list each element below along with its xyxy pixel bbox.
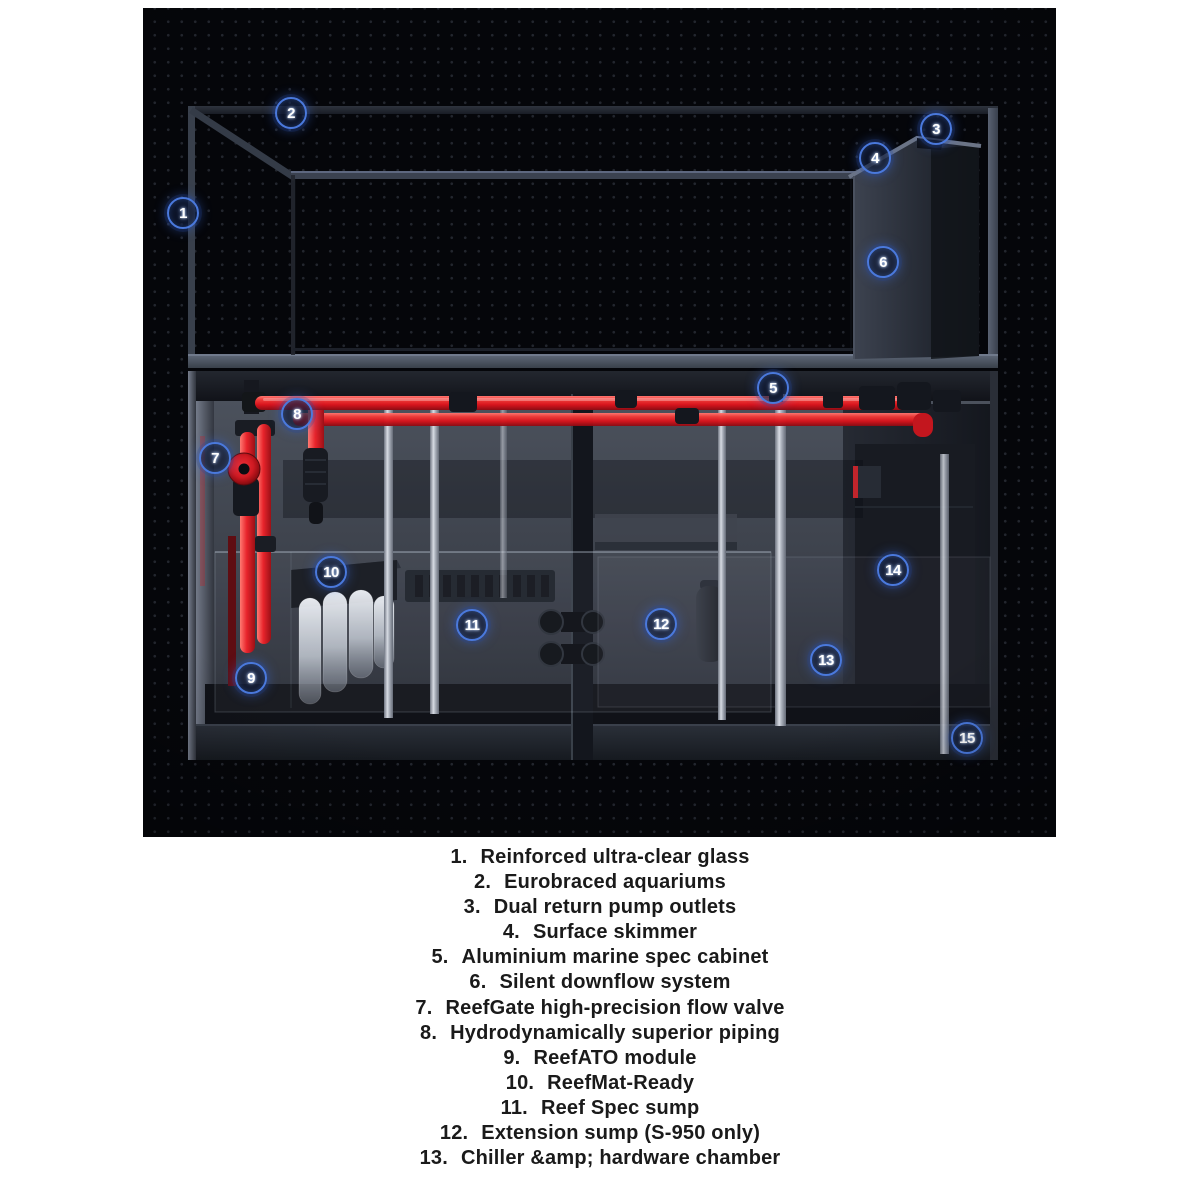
feature-item-2: 2.Eurobraced aquariums	[0, 870, 1200, 895]
callout-badge-3: 3	[920, 113, 952, 145]
downflow-shade	[931, 145, 979, 359]
feature-number: 11.	[501, 1096, 528, 1121]
tank-top-frame	[188, 106, 998, 114]
feature-number: 12.	[440, 1121, 468, 1146]
controller-red-stripe	[853, 466, 858, 498]
callout-badge-11: 11	[456, 609, 488, 641]
callout-badge-10: 10	[315, 556, 347, 588]
feature-number: 1.	[450, 845, 467, 870]
check-valve	[303, 448, 328, 502]
feature-label: Silent downflow system	[499, 971, 730, 993]
feature-label: Surface skimmer	[533, 921, 697, 943]
pipe-highlight	[263, 398, 919, 401]
callout-badge-9: 9	[235, 662, 267, 694]
feature-item-9: 9.ReefATO module	[0, 1046, 1200, 1071]
feature-item-7: 7.ReefGate high-precision flow valve	[0, 996, 1200, 1021]
feature-label: Aluminium marine spec cabinet	[462, 946, 769, 968]
feature-label: ReefGate high-precision flow valve	[445, 997, 784, 1019]
aquarium-figure: 123456789101112131415	[143, 8, 1056, 837]
feature-number: 10.	[506, 1071, 534, 1096]
feature-item-5: 5.Aluminium marine spec cabinet	[0, 945, 1200, 970]
cabinet-right-frame	[990, 371, 998, 760]
feature-item-12: 12.Extension sump (S-950 only)	[0, 1121, 1200, 1146]
feature-number: 13.	[420, 1146, 448, 1171]
down-pipe-b	[257, 424, 271, 644]
feature-label: Reinforced ultra-clear glass	[481, 846, 750, 868]
base-edge	[190, 724, 998, 726]
feature-number: 9.	[503, 1046, 520, 1071]
tank-inner-bottom-edge	[293, 348, 853, 351]
feature-label: Extension sump (S-950 only)	[481, 1122, 760, 1144]
callout-badge-5: 5	[757, 372, 789, 404]
feature-item-8: 8.Hydrodynamically superior piping	[0, 1021, 1200, 1046]
feature-label: Hydrodynamically superior piping	[450, 1022, 780, 1044]
post	[500, 398, 507, 598]
feature-number: 5.	[431, 945, 448, 970]
tank-left-frame	[188, 106, 195, 362]
feature-label: Reef Spec sump	[541, 1097, 699, 1119]
tank-right-frame	[988, 108, 998, 366]
pipe-end-bend	[913, 413, 933, 437]
post	[940, 454, 949, 754]
feature-number: 3.	[464, 895, 481, 920]
feature-item-13: 13.Chiller &amp; hardware chamber	[0, 1146, 1200, 1171]
valve-hub	[239, 464, 250, 475]
callout-badge-4: 4	[859, 142, 891, 174]
callout-badge-2: 2	[275, 97, 307, 129]
callout-badge-6: 6	[867, 246, 899, 278]
feature-label: Dual return pump outlets	[494, 896, 737, 918]
callout-badge-15: 15	[951, 722, 983, 754]
manifold-pipe-2	[293, 413, 929, 426]
callout-badge-8: 8	[281, 398, 313, 430]
feature-number: 2.	[474, 870, 491, 895]
callout-badge-13: 13	[810, 644, 842, 676]
feature-number: 8.	[420, 1021, 437, 1046]
feature-label: Chiller &amp; hardware chamber	[461, 1147, 780, 1169]
post	[718, 406, 726, 720]
feature-number: 6.	[469, 970, 486, 995]
aquarium-illustration	[143, 8, 1056, 837]
valve-tip	[309, 502, 323, 524]
feature-item-10: 10.ReefMat-Ready	[0, 1071, 1200, 1096]
feature-list: 1.Reinforced ultra-clear glass2.Eurobrac…	[0, 845, 1200, 1171]
post	[775, 394, 786, 726]
cabinet-left-frame	[188, 371, 196, 760]
feature-label: Eurobraced aquariums	[504, 871, 726, 893]
feature-number: 4.	[503, 920, 520, 945]
shaded-pipe	[228, 536, 236, 686]
extension-shelf-edge	[595, 542, 737, 550]
callout-badge-1: 1	[167, 197, 199, 229]
feature-item-3: 3.Dual return pump outlets	[0, 895, 1200, 920]
tank-back-left-edge	[291, 175, 295, 355]
callout-badge-7: 7	[199, 442, 231, 474]
pipe-union	[255, 536, 276, 552]
feature-item-4: 4.Surface skimmer	[0, 920, 1200, 945]
feature-number: 7.	[415, 996, 432, 1021]
front-rim-highlight	[291, 171, 865, 173]
feature-item-6: 6.Silent downflow system	[0, 970, 1200, 995]
feature-item-11: 11.Reef Spec sump	[0, 1096, 1200, 1121]
chamber-line	[855, 506, 973, 508]
feature-label: ReefMat-Ready	[547, 1072, 694, 1094]
callout-badge-14: 14	[877, 554, 909, 586]
feature-label: ReefATO module	[533, 1047, 696, 1069]
post	[384, 398, 393, 718]
post	[430, 396, 439, 714]
feature-item-1: 1.Reinforced ultra-clear glass	[0, 845, 1200, 870]
callout-badge-12: 12	[645, 608, 677, 640]
tank-back-glass	[295, 178, 851, 356]
page: 123456789101112131415 1.Reinforced ultra…	[0, 0, 1200, 1200]
cabinet-base	[190, 726, 998, 760]
